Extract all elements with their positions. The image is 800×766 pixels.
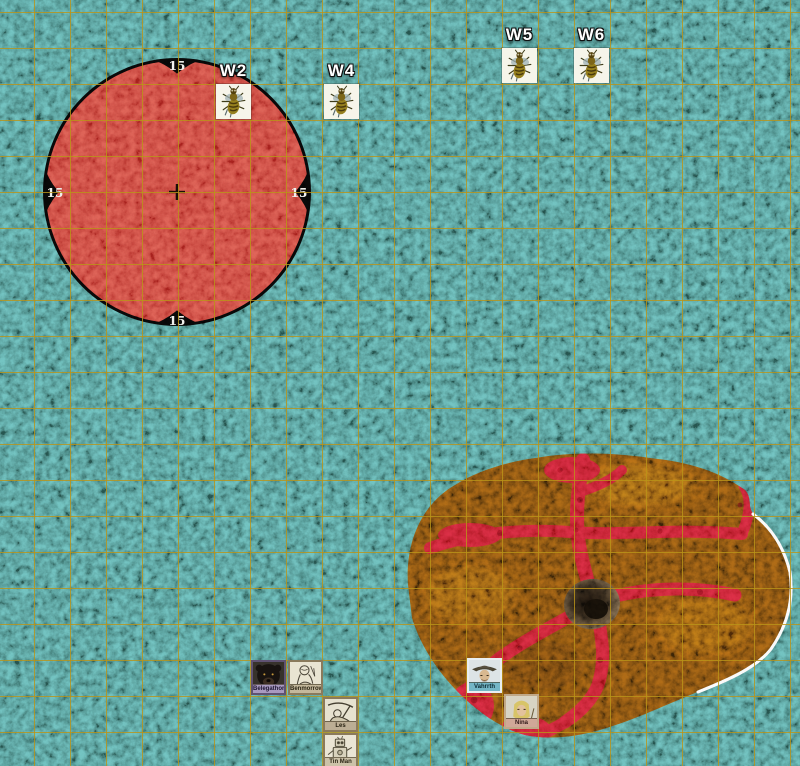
wasp-token-W2[interactable] [216, 84, 251, 119]
wasp-token-label-W6: W6 [578, 25, 606, 45]
wasp-icon [216, 84, 251, 119]
character-token-les[interactable]: Les [323, 697, 358, 732]
map-canvas[interactable]: 15 15 15 15 W2W4W5W6 BelegathorBenmorrow… [0, 0, 800, 766]
character-token-belegathor[interactable]: Belegathor [251, 660, 286, 695]
character-name-plate: Nina [506, 718, 537, 727]
wasp-token-W4[interactable] [324, 84, 359, 119]
wasp-token-label-W5: W5 [506, 25, 534, 45]
wasp-token-label-W4: W4 [328, 61, 356, 81]
character-name-plate: Benmorrow [290, 684, 321, 693]
wasp-icon [574, 48, 609, 83]
character-name-plate: Les [325, 721, 356, 730]
wasp-icon [324, 84, 359, 119]
wasp-token-label-W2: W2 [220, 61, 248, 81]
character-token-benmorrow[interactable]: Benmorrow [288, 660, 323, 695]
wasp-token-W6[interactable] [574, 48, 609, 83]
character-token-vahrrth[interactable]: Vahrrth [467, 658, 502, 693]
character-name-plate: Vahrrth [469, 682, 500, 691]
wasp-icon [502, 48, 537, 83]
character-name-plate: Tin Man [325, 757, 356, 766]
map-artwork: 15 15 15 15 [0, 0, 800, 766]
character-token-nina[interactable]: Nina [504, 694, 539, 729]
wasp-token-W5[interactable] [502, 48, 537, 83]
character-name-plate: Belegathor [253, 684, 284, 693]
character-token-tin-man[interactable]: Tin Man [323, 733, 358, 766]
